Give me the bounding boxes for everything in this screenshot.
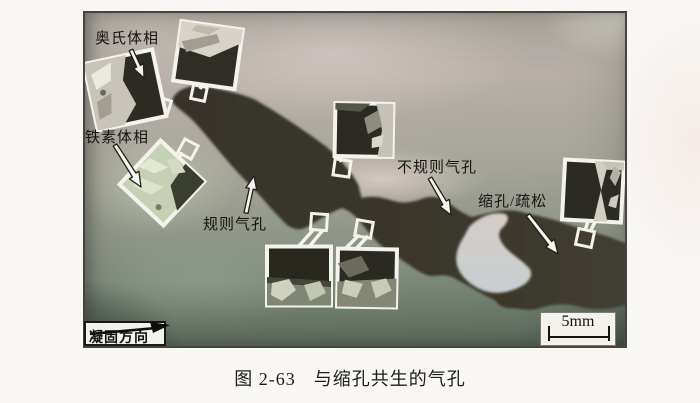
inset-bottom1 [267, 247, 331, 306]
inset-top [173, 21, 243, 89]
label-austenite: 奥氏体相 [95, 27, 159, 48]
figure-title: 与缩孔共生的气孔 [314, 369, 466, 389]
inset-austenite [85, 49, 166, 130]
solidification-direction-arrow [86, 318, 178, 338]
solidification-direction-box: 凝固方向 [84, 321, 166, 346]
figure-number: 图 2-63 [234, 369, 296, 389]
pore-dark-region [172, 86, 627, 310]
arrow-regular-pore [244, 176, 257, 213]
label-irregular-pore: 不规则气孔 [397, 156, 477, 177]
inset-ferrite [120, 141, 205, 226]
scale-bar-rule [541, 313, 617, 347]
micrograph-overlay [85, 13, 627, 348]
inset-middle [335, 103, 394, 157]
scale-bar: 5mm [540, 312, 616, 346]
label-shrinkage: 缩孔/疏松 [478, 190, 547, 211]
page: { "figure": { "labels": { "austenite": "… [0, 0, 700, 403]
label-ferrite: 铁素体相 [85, 126, 149, 147]
figure-caption: 图 2-63与缩孔共生的气孔 [0, 365, 700, 391]
inset-right [562, 159, 624, 222]
inset-bottom2 [337, 248, 397, 307]
label-regular-pore: 规则气孔 [203, 213, 267, 234]
micrograph-photo [83, 11, 627, 348]
